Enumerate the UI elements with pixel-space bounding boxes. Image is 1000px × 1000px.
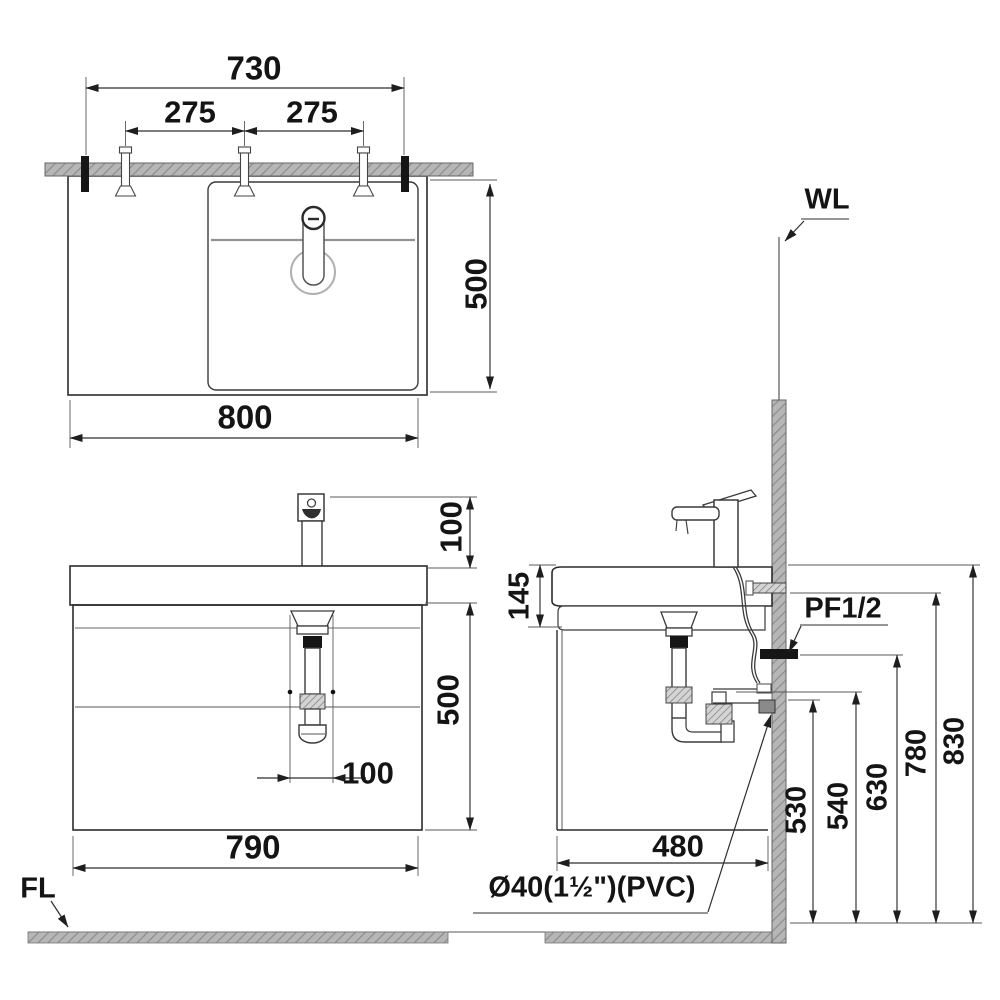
wall-leader-line — [785, 221, 804, 241]
dim-100-drain-label: 100 — [342, 758, 394, 789]
dim-530-label: 530 — [783, 786, 812, 834]
cabinet-front — [73, 605, 422, 830]
dim-275-right-label: 275 — [286, 97, 338, 128]
drawing-linework — [0, 0, 1000, 1000]
dim-830-label: 830 — [941, 717, 970, 765]
rail-end-mark-left — [81, 156, 89, 192]
dim-100-faucet-label: 100 — [436, 501, 467, 553]
supply-leader-line — [789, 626, 801, 652]
dim-540-label: 540 — [825, 782, 854, 830]
front-view-dimension-lines — [73, 497, 470, 868]
dim-790-label: 790 — [225, 831, 280, 864]
top-view — [45, 77, 497, 448]
floor-leader-line — [51, 901, 68, 927]
dim-480-label: 480 — [652, 831, 704, 862]
floor-label: FL — [20, 875, 55, 904]
dim-800-label: 800 — [217, 401, 272, 434]
dim-275-left-label: 275 — [164, 97, 216, 128]
drain-trap-front-icon — [291, 611, 334, 743]
drain-pipe-label: Ø40(1½")(PVC) — [488, 874, 695, 903]
rail-end-mark-right — [401, 156, 409, 192]
dim-500-front-label: 500 — [433, 674, 464, 726]
floor-slab-left — [28, 932, 448, 943]
basin-apron-side — [558, 606, 765, 630]
supply-stub-mark — [760, 649, 798, 659]
floor — [28, 932, 786, 943]
wall-screw-icon — [746, 581, 786, 595]
cabinet-side — [557, 630, 768, 830]
dim-145-label: 145 — [506, 572, 535, 620]
basin-front — [70, 566, 427, 605]
front-view-extension-lines — [73, 497, 477, 876]
drain-leader-line — [708, 715, 771, 912]
dim-500-top-label: 500 — [461, 258, 492, 310]
wall-section — [772, 400, 786, 943]
dim-780-label: 780 — [903, 729, 932, 777]
floor-slab-right — [545, 932, 786, 943]
dim-730-label: 730 — [226, 52, 281, 85]
faucet-side-icon — [672, 490, 756, 567]
side-view — [473, 219, 982, 943]
wall-label: WL — [804, 186, 849, 215]
drain-trap-side-icon — [661, 612, 775, 742]
supply-label: PF1/2 — [804, 595, 881, 624]
technical-drawing-canvas: 730 275 275 500 800 100 500 100 790 FL W… — [0, 0, 1000, 1000]
faucet-front-icon — [298, 494, 324, 567]
dim-630-label: 630 — [864, 763, 893, 811]
